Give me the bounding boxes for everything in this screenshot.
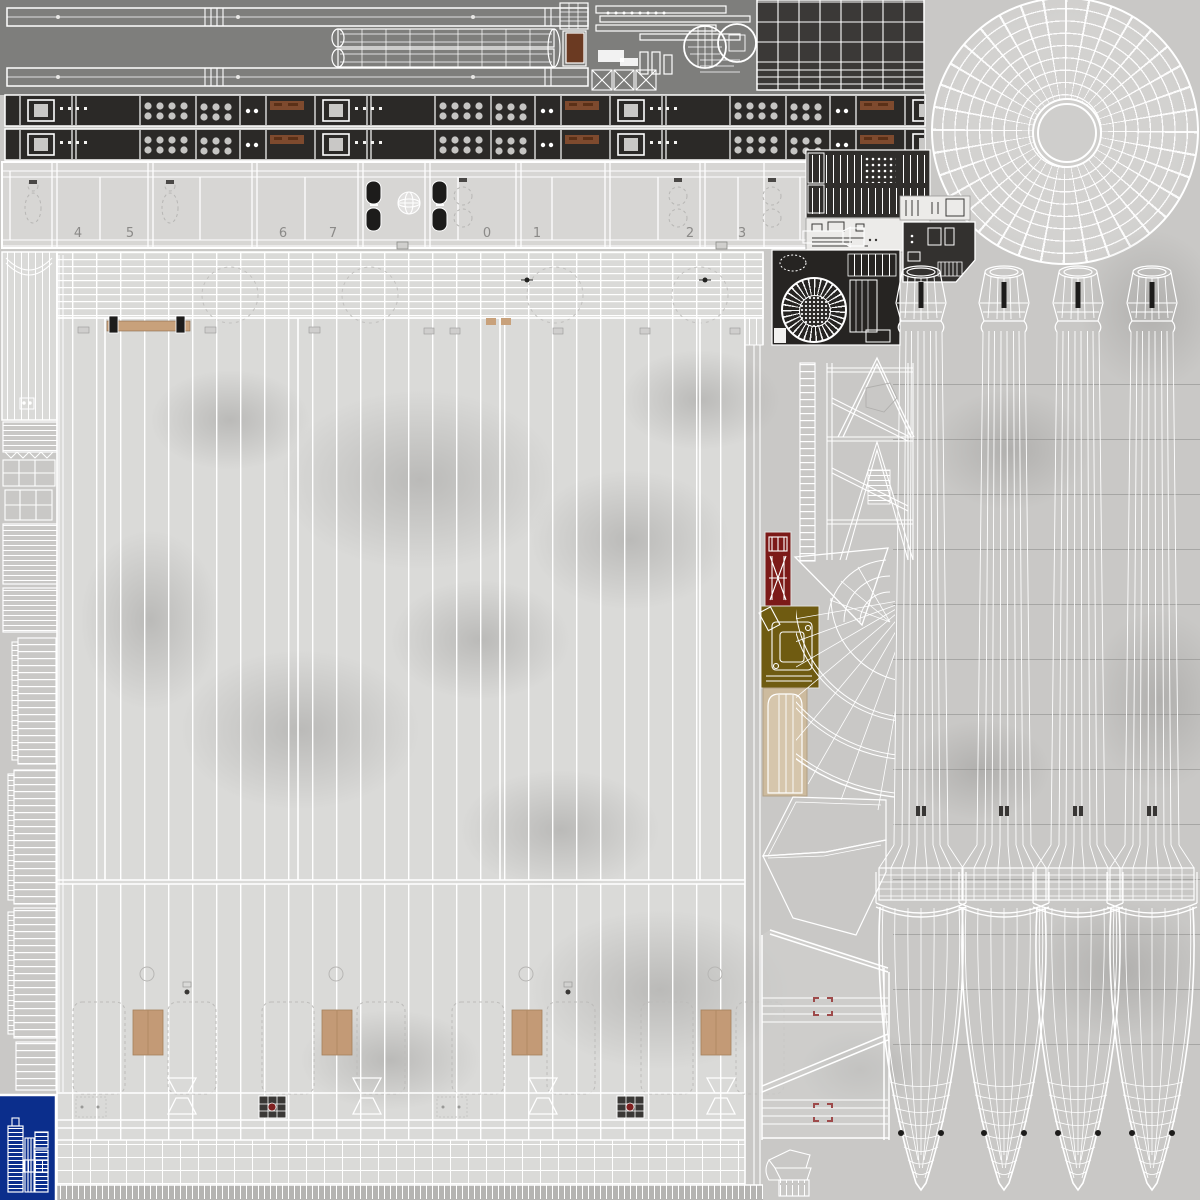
bay-number-5: 5	[126, 226, 134, 241]
bay-number-0: 0	[483, 226, 491, 241]
ladder-rib	[16, 1042, 56, 1090]
bay-number-2: 2	[686, 226, 694, 241]
pipe-elbow-part	[766, 1150, 811, 1196]
ladder-rib	[12, 638, 56, 764]
brand-logo	[0, 1095, 57, 1200]
olive-engine-part	[759, 606, 819, 688]
faceted-arrow-part	[763, 797, 886, 935]
bay-number-4: 4	[74, 226, 82, 241]
bay-number-7: 7	[329, 226, 337, 241]
numbered-gondola-band: 4 5 6 7 0 1 2 3	[2, 162, 808, 249]
wire-sphere	[398, 192, 420, 214]
top-deck-band	[0, 0, 924, 95]
tail-fin-panel	[762, 930, 889, 1140]
bay-number-1: 1	[533, 226, 541, 241]
texture-atlas-sheet: 4 5 6 7 0 1 2 3	[0, 0, 1200, 1200]
left-parts-column	[2, 252, 63, 1092]
bay-number-3: 3	[738, 226, 746, 241]
wireframe-overlay: 4 5 6 7 0 1 2 3	[0, 0, 1200, 1200]
beige-plank-door	[763, 688, 807, 796]
ladder-rib	[8, 908, 56, 1038]
lower-hull-door-bays	[57, 880, 784, 1200]
radial-fan-wireframe	[781, 277, 847, 343]
ladder-rib	[8, 770, 56, 904]
hatch-polygon-panel	[903, 222, 975, 282]
porthole-strips	[5, 95, 1189, 160]
fan-hub	[799, 295, 831, 327]
bay-number-6: 6	[279, 226, 287, 241]
rust-window	[566, 33, 584, 63]
red-seat-part	[765, 532, 791, 606]
instrument-grid-panel	[757, 0, 924, 90]
